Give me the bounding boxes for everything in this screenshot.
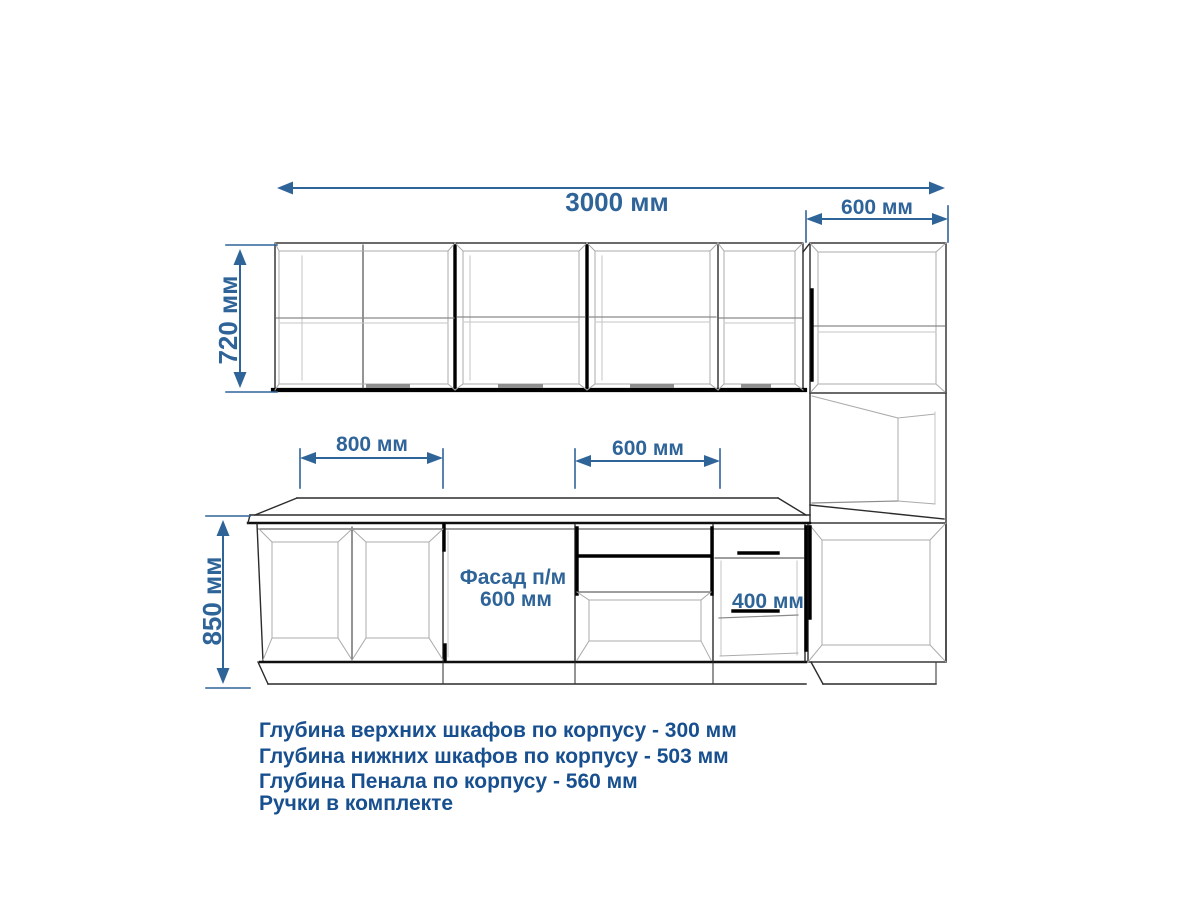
note-handles-included: Ручки в комплекте — [259, 792, 453, 815]
dim-total-width-label: 3000 мм — [565, 187, 669, 217]
facade-label-line1: Фасад п/м — [460, 566, 566, 589]
dim-narrow-section-width-label: 400 мм — [732, 590, 804, 613]
dim-left-section-width-label: 800 мм — [336, 433, 408, 456]
dim-base-height-label: 850 мм — [197, 556, 227, 645]
facade-label-line2: 600 мм — [480, 588, 552, 611]
diagram-canvas: 3000 мм 600 мм 720 мм 800 мм 600 мм 850 … — [0, 0, 1200, 900]
note-upper-depth: Глубина верхних шкафов по корпусу - 300 … — [259, 719, 737, 742]
upper-cabinets-drawing — [273, 243, 805, 390]
kitchen-dimension-diagram: 3000 мм 600 мм 720 мм 800 мм 600 мм 850 … — [0, 0, 1200, 900]
dim-pencil-width-label: 600 мм — [841, 196, 913, 219]
dim-upper-height-label: 720 мм — [213, 275, 243, 364]
notes-block: Глубина верхних шкафов по корпусу - 300 … — [259, 719, 737, 815]
note-pencil-depth: Глубина Пенала по корпусу - 560 мм — [259, 770, 638, 793]
tall-cabinet-drawing — [803, 243, 946, 684]
dim-middle-section-width-label: 600 мм — [612, 437, 684, 460]
note-base-depth: Глубина нижних шкафов по корпусу - 503 м… — [259, 745, 729, 768]
countertop-drawing — [248, 498, 810, 523]
dimension-lines — [206, 182, 948, 689]
